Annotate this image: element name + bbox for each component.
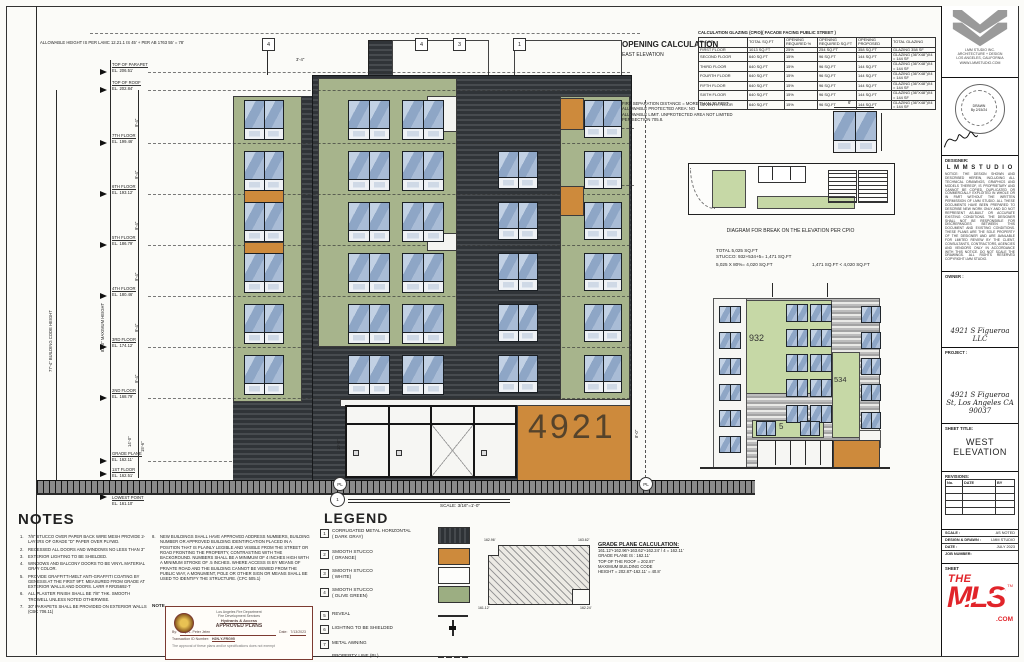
title-underline <box>348 499 510 500</box>
window <box>786 329 808 347</box>
window <box>348 100 390 140</box>
left-dim: 10'-0" <box>336 439 341 450</box>
mini-mullion <box>820 441 821 465</box>
legend-swatch-orange <box>438 548 470 565</box>
window <box>244 355 284 395</box>
mini-mullion <box>775 441 776 465</box>
opening-calc-sub: EAST ELEVATION <box>622 52 664 59</box>
designer-name: L M M S T U D I O <box>945 165 1015 171</box>
level-flag <box>100 242 107 248</box>
break-diagram-title: DIAGRAM FOR BREAK ON THE ELEVATION PER C… <box>688 228 893 235</box>
level-flag <box>100 191 107 197</box>
break-calc-3b: 1,471 SQ.FT < 4,020 SQ.FT <box>812 262 870 268</box>
project-label: PROJECT : <box>945 350 1015 355</box>
mini-ground <box>700 467 890 469</box>
window <box>800 421 820 436</box>
glazing-table: FLOORTOTAL SQ.FT OPENING REQUIRED %OPENI… <box>698 37 936 110</box>
window <box>756 421 776 436</box>
designer-section: DESIGNER: L M M S T U D I O NOTICE: THE … <box>942 156 1018 272</box>
window <box>498 304 538 342</box>
level-dash <box>148 347 630 348</box>
building-code-height-label: 77'-4" BUILDING CODE HEIGHT <box>48 310 53 372</box>
stamp-fine-print: The approval of these plans and/or speci… <box>172 644 306 648</box>
diagram-notch <box>572 589 589 604</box>
diagram-notch <box>488 545 499 556</box>
level-dash <box>148 90 630 91</box>
window <box>786 304 808 322</box>
window <box>584 253 622 291</box>
mls-com: .COM <box>996 616 1013 623</box>
glazing-table-title: CALCULATION GLAZING (CPIO)( FACADE FACIN… <box>698 30 836 35</box>
window <box>786 379 808 397</box>
window <box>584 355 622 393</box>
orange-accent <box>560 186 584 216</box>
legend-swatch-pl <box>438 656 468 658</box>
entry-door <box>432 425 473 476</box>
level-line <box>110 60 111 493</box>
mini-mullion <box>805 441 806 465</box>
floor-dim: 9'-4" <box>134 375 139 383</box>
area-label-932: 932 <box>749 333 764 343</box>
top-dim: 3'-4" <box>296 57 304 62</box>
level-dash <box>148 194 630 195</box>
window <box>719 436 741 453</box>
owner-label: OWNER : <box>945 274 1015 279</box>
legend-swatch-white <box>438 567 470 584</box>
window <box>348 202 390 242</box>
window <box>402 355 444 395</box>
legend-swatch-corrugated <box>438 527 470 544</box>
seal-section: DRAWNBy 2/15/24 <box>942 78 1018 156</box>
window <box>348 304 390 344</box>
window <box>498 202 538 240</box>
info-rows-section: SCALE :AS NOTED DESIGN & DRAWN :LMM STUD… <box>942 530 1018 564</box>
window <box>861 306 881 323</box>
window <box>348 253 390 293</box>
window <box>719 306 741 323</box>
legend-light-icon <box>449 626 456 630</box>
mini-stucco-534 <box>832 352 860 438</box>
window <box>810 354 832 372</box>
pl-marker: PL <box>333 477 347 491</box>
legend-label-pl: PROPERTY LINE (PL) <box>332 653 379 659</box>
sheet-title-label: SHEET TITLE: <box>945 426 1015 431</box>
storefront-pane <box>390 425 431 476</box>
level-label: GRADE PLANEEL. 162.11' <box>112 451 142 462</box>
window <box>861 384 881 401</box>
drawing-sheet: ALLOWABLE HEIGHT IS PER LAMC 12.21.1 IS … <box>0 0 1024 662</box>
grid-bubble: 1 <box>513 38 526 51</box>
level-dash <box>148 245 630 246</box>
level-label: TOP OF ROOFEL. 202.84' <box>112 80 141 91</box>
floor-dim: 9'-4" <box>134 324 139 332</box>
firm-logo-section: LMM STUDIO INC.ARCHITECTURE + DESIGN LOS… <box>942 6 1018 78</box>
level-flag <box>100 87 107 93</box>
legend-num: 7 <box>320 640 329 649</box>
owner-section: OWNER : 4921 S Figueroa LLC <box>942 272 1018 348</box>
window-vent <box>856 141 877 152</box>
legend-swatch-olive <box>438 586 470 603</box>
level-flag <box>100 69 107 75</box>
window <box>584 151 622 189</box>
title-underline <box>348 502 510 503</box>
legend-title: LEGEND <box>324 510 388 526</box>
level-label: 6TH FLOOREL. 193.12' <box>112 184 136 195</box>
grid-bubble: 4 <box>262 38 275 51</box>
window <box>498 253 538 291</box>
dim-line <box>834 107 874 108</box>
corner-el: 161.12' <box>478 606 489 610</box>
lafd-approval-stamp: Los Angeles Fire Department Fire Develop… <box>165 606 313 660</box>
stucco-area <box>712 170 746 208</box>
grid-bubble: 3 <box>453 38 466 51</box>
corrugated-base-left <box>233 400 312 480</box>
door-mark <box>396 450 402 456</box>
floor-dim: 9'-4" <box>134 222 139 230</box>
dim-line <box>56 90 57 480</box>
transom-pane <box>432 407 473 423</box>
window-pane <box>856 112 877 140</box>
firm-info: LMM STUDIO INC.ARCHITECTURE + DESIGN LOS… <box>945 48 1015 65</box>
level-dash <box>148 296 630 297</box>
dim-line <box>881 113 882 151</box>
level-label: 2ND FLOOREL. 168.79' <box>112 388 136 399</box>
window-vent <box>834 141 855 152</box>
elevator-lobby <box>758 166 806 183</box>
window <box>244 100 284 140</box>
legend-label: SMOOTH STUCCO( OLIVE GREEN) <box>332 587 432 598</box>
notes-title: NOTES <box>18 511 75 528</box>
title-block: LMM STUDIO INC.ARCHITECTURE + DESIGN LOS… <box>941 6 1018 656</box>
area-label-534: 534 <box>834 375 847 384</box>
designer-label: DESIGNER: <box>945 158 1015 163</box>
legend-swatch-reveal <box>438 615 468 617</box>
window <box>786 354 808 372</box>
signature-icon <box>942 127 980 151</box>
grade-dash <box>148 461 232 462</box>
window <box>719 358 741 375</box>
window <box>584 202 622 240</box>
window <box>861 332 881 349</box>
area-label-5: 5 <box>779 422 783 431</box>
corner-el: 163.62' <box>578 538 589 542</box>
line <box>772 167 773 180</box>
storefront-pane <box>347 425 388 476</box>
window <box>244 304 284 344</box>
legend-label: LIGHTING TO BE SHIELDED <box>332 625 393 631</box>
elevation-scale: SCALE: 3/16"=1'-0" <box>440 503 480 509</box>
leader <box>827 283 828 297</box>
legend-num: 5 <box>320 611 329 620</box>
window-detail <box>833 111 877 153</box>
sheet-title-section: SHEET TITLE: WESTELEVATION <box>942 424 1018 472</box>
allowable-height-line <box>90 33 640 34</box>
legend-num: 3 <box>320 569 329 578</box>
stair-hatch <box>828 170 857 203</box>
owner-name: 4921 S Figueroa LLC <box>945 327 1015 343</box>
transom-pane <box>390 407 431 423</box>
notes-col1: 1.7/8" STUCCO OVER PAPER BACK WIRE MESH … <box>20 534 148 616</box>
window <box>810 304 832 322</box>
mini-storefront <box>757 440 833 468</box>
level-label: 3RD FLOOREL. 174.12' <box>112 337 136 348</box>
door-mark <box>481 450 487 456</box>
right-dim: 8'-0" <box>634 430 639 438</box>
mls-tm: TM <box>1007 583 1013 588</box>
level-dash <box>148 143 630 144</box>
legend-label: REVEAL <box>332 611 350 617</box>
address-number: 4921 <box>528 408 616 447</box>
level-flag <box>100 395 107 401</box>
window <box>244 202 284 242</box>
window <box>402 151 444 191</box>
fire-separation-note: FIRE SEPARATION DISTANCE = MORE THAN 30 … <box>622 101 807 122</box>
stamp-by-row: By:Insp. L. Peter Jelen Date:7/13/2023 <box>172 630 306 635</box>
window <box>244 151 284 191</box>
window <box>402 202 444 242</box>
window <box>348 355 390 395</box>
level-flag <box>100 140 107 146</box>
legend-num: 2 <box>320 550 329 559</box>
detail-number: 1 <box>330 492 345 507</box>
line <box>790 167 791 180</box>
transom-pane <box>475 407 516 423</box>
corner-el: 162.96' <box>484 538 495 542</box>
legend-label: SMOOTH STUCCO( ORANGE) <box>332 549 432 560</box>
window <box>810 329 832 347</box>
window-pane <box>834 112 855 140</box>
window <box>719 332 741 349</box>
window <box>861 412 881 429</box>
first-floor-dim: 14'-0" <box>127 436 132 447</box>
window <box>584 100 622 138</box>
sheet-number-section: SHEET THE MLS TM .COM <box>942 564 1018 656</box>
grade-plane-calc: GRADE PLANE CALCULATION: 161.12'+162.96'… <box>598 542 718 574</box>
level-label: 5TH FLOOREL. 186.79' <box>112 235 136 246</box>
revisions-table: No.DATEBY <box>945 479 1015 515</box>
legend-num: 1 <box>320 529 329 538</box>
level-label: 4TH FLOOREL. 180.46' <box>112 286 136 297</box>
window <box>402 100 444 140</box>
legend-num: 4 <box>320 588 329 597</box>
corner-el: 162.24' <box>580 606 591 610</box>
transom-pane <box>347 407 388 423</box>
door-mark <box>353 450 359 456</box>
allowable-height-note: ALLOWABLE HEIGHT IS PER LAMC 12.21.1 IS … <box>40 40 184 45</box>
project-section: PROJECT : 4921 S Figueroa St, Los Angele… <box>942 348 1018 424</box>
window <box>719 384 741 401</box>
floor-dim: 9'-4" <box>134 119 139 127</box>
dim-line <box>138 90 139 478</box>
grid-bubble: 4 <box>415 38 428 51</box>
level-dash <box>148 72 630 73</box>
window <box>498 151 538 189</box>
window <box>402 304 444 344</box>
break-calc: TOTAL 5,025 SQ.FT STUCCO: 932+534+5= 1,4… <box>716 248 791 259</box>
floor-dim: 9'-4" <box>134 273 139 281</box>
legend-label: METAL AWNING <box>332 640 367 646</box>
city-seal-icon <box>174 613 194 633</box>
window <box>584 304 622 342</box>
window-detail-dim: 6' <box>848 100 851 105</box>
leader <box>772 283 773 297</box>
level-flag <box>100 458 107 464</box>
stair-hatch <box>858 170 888 203</box>
level-flag <box>100 293 107 299</box>
window <box>810 379 832 397</box>
legend-num: 6 <box>320 625 329 634</box>
window <box>244 253 284 293</box>
mini-mullion <box>790 441 791 465</box>
level-flag <box>100 471 107 477</box>
level-flag <box>100 344 107 350</box>
copyright-notice: NOTICE: THE DESIGN SHOWN AND DESCRIBED H… <box>945 173 1015 262</box>
sheet-label: SHEET <box>945 566 1015 571</box>
window <box>719 410 741 427</box>
level-label: TOP OF PARAPETEL. 206.51' <box>112 62 148 73</box>
ground-line <box>37 493 755 495</box>
pl-marker: PL <box>639 477 653 491</box>
project-address: 4921 S Figueroa St, Los Angeles CA 90037 <box>945 391 1015 415</box>
sheet-title: WESTELEVATION <box>945 437 1015 457</box>
notes-col2: 8.NEW BUILDINGS SHALL HAVE APPROVED ADDR… <box>152 534 310 581</box>
level-label: LOWEST POINTEL. 161.10' <box>112 495 144 506</box>
mini-orange <box>833 440 880 468</box>
lmm-logo-icon <box>952 10 1008 48</box>
level-label: 1ST FLOOREL. 162.51' <box>112 467 135 478</box>
level-label: 7TH FLOOREL. 199.46' <box>112 133 136 144</box>
storefront-pane <box>475 425 516 476</box>
orange-accent <box>560 98 584 130</box>
mls-logo: THE MLS TM .COM <box>947 573 1013 625</box>
floor-dim: 9'-4" <box>134 171 139 179</box>
legend-label: CORRUGATED METAL HORIZONTAL( DARK GRAY) <box>332 528 432 539</box>
window <box>402 253 444 293</box>
window <box>861 358 881 375</box>
revisions-section: REVISIONS: No.DATEBY <box>942 472 1018 530</box>
window <box>348 151 390 191</box>
break-calc-3a: 5,025 X 80%= 4,020 SQ.FT <box>716 262 773 268</box>
property-line <box>645 100 646 493</box>
stamp-tid-row: Transaction ID Number:H2N-Y-FRG95 <box>172 637 306 642</box>
window <box>498 355 538 393</box>
legend-label: SMOOTH STUCCO( WHITE) <box>332 568 432 579</box>
